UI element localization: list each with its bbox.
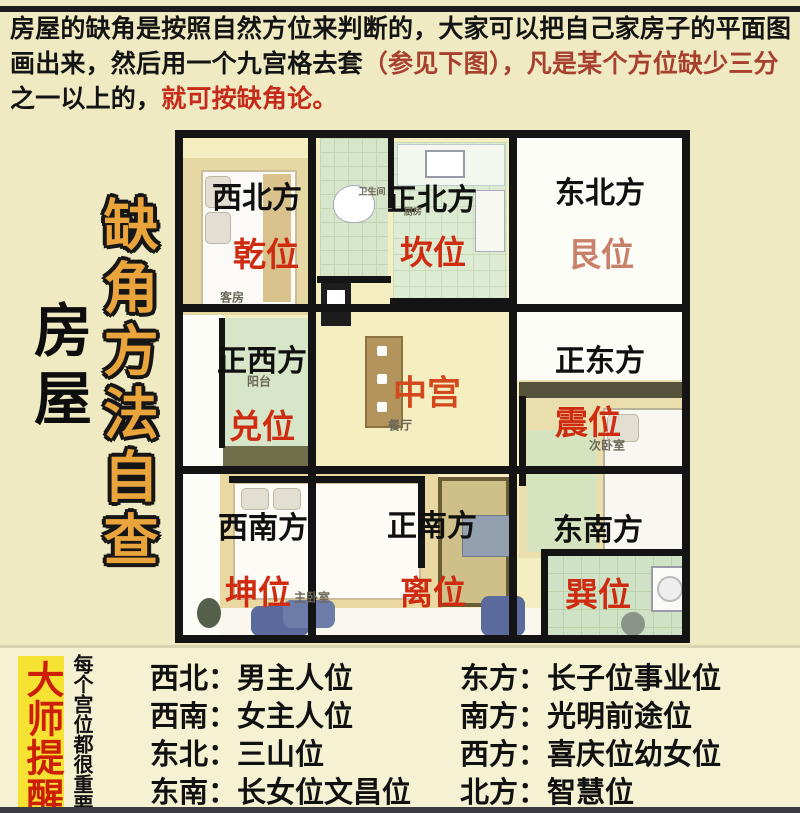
position-label-qian: 乾位	[233, 228, 299, 276]
grid-border-left	[175, 130, 183, 643]
position-label-xun: 巽位	[565, 568, 631, 616]
master-reminder-title: 大师提醒	[21, 660, 61, 813]
position-label-dui: 兑位	[229, 400, 295, 448]
side-title-self-check: 缺角方法自查	[94, 196, 158, 596]
advice-item: 西方：喜庆位幼女位	[460, 736, 721, 774]
fridge-icon	[475, 190, 505, 252]
direction-label-southeast: 东南方	[553, 505, 643, 549]
grid-line-horizontal-2	[175, 466, 690, 474]
position-label-kan: 坎位	[400, 226, 466, 274]
room-label-bath: 卫生间	[358, 185, 385, 198]
window-bench	[223, 446, 308, 466]
plate-icon	[377, 402, 387, 412]
infographic-page: 房屋的缺角是按照自然方位来判断的，大家可以把自己家房子的平面图画出来，然后用一个…	[0, 0, 800, 813]
direction-label-south: 正南方	[387, 501, 477, 545]
plate-icon	[377, 374, 387, 384]
sink-icon	[425, 150, 465, 178]
intro-paragraph: 房屋的缺角是按照自然方位来判断的，大家可以把自己家房子的平面图画出来，然后用一个…	[10, 12, 792, 117]
position-label-kun: 坤位	[225, 566, 291, 614]
advice-list-left: 西北：男主人位 西南：女主人位 东北：三山位 东南：长女位文昌位	[150, 660, 411, 812]
side-title-house: 房屋	[26, 300, 88, 460]
plant-icon	[197, 598, 221, 628]
grid-line-vertical-2	[509, 130, 517, 643]
position-label-center-palace: 中宫	[393, 366, 461, 415]
bottom-border-bar	[0, 807, 800, 813]
wall-segment	[541, 549, 548, 643]
room-label-balcony: 阳台	[247, 373, 271, 390]
room-label-kitchen: 厨房	[404, 205, 422, 218]
position-label-gen: 艮位	[568, 228, 634, 276]
advice-item: 东北：三山位	[150, 736, 411, 774]
advice-item: 西北：男主人位	[150, 660, 411, 698]
grid-border-top	[175, 130, 690, 138]
advice-list-right: 东方：长子位事业位 南方：光明前途位 西方：喜庆位幼女位 北方：智慧位	[460, 660, 721, 812]
missing-area-northeast	[517, 130, 690, 304]
room-label-master-bedroom: 主卧室	[294, 589, 330, 606]
advice-item: 西南：女主人位	[150, 698, 411, 736]
intro-text-red-2: 就可按缺角论。	[161, 85, 337, 113]
grid-border-right	[682, 130, 690, 643]
washer-drum-icon	[657, 576, 683, 602]
wall-segment	[229, 476, 425, 483]
direction-label-north: 正北方	[387, 175, 477, 219]
advice-item: 东方：长子位事业位	[460, 660, 721, 698]
direction-label-northwest: 西北方	[212, 173, 302, 217]
floor-plan: 西北方 乾位 客房 正北方 坎位 卫生间 厨房 东北方 艮位 正西方 阳台 兑位…	[175, 130, 690, 643]
room-label-second-bedroom: 次卧室	[589, 437, 625, 454]
grid-line-vertical-1	[308, 130, 316, 643]
intro-text-black-2: 之一以上的，	[10, 85, 161, 113]
room-label-guest: 客房	[220, 289, 244, 306]
room-label-dining: 餐厅	[388, 417, 412, 434]
grid-line-horizontal-1	[175, 304, 690, 312]
grid-border-bottom	[175, 635, 690, 643]
advice-item: 南方：光明前途位	[460, 698, 721, 736]
position-label-li: 离位	[400, 566, 466, 614]
direction-label-east: 正东方	[555, 336, 645, 380]
wall-segment	[541, 549, 690, 556]
direction-label-northeast: 东北方	[555, 168, 645, 212]
footer-advice-section: 大师提醒 每个宫位都很重要 西北：男主人位 西南：女主人位 东北：三山位 东南：…	[0, 645, 800, 813]
direction-label-southwest: 西南方	[218, 503, 308, 547]
blue-cushion-icon	[481, 596, 525, 636]
intro-text-red-1: （参见下图），凡是某个方位缺少三分	[363, 50, 779, 78]
footer-vertical-note: 每个宫位都很重要	[70, 654, 91, 813]
plate-icon	[377, 346, 387, 356]
wall-segment	[317, 276, 391, 283]
